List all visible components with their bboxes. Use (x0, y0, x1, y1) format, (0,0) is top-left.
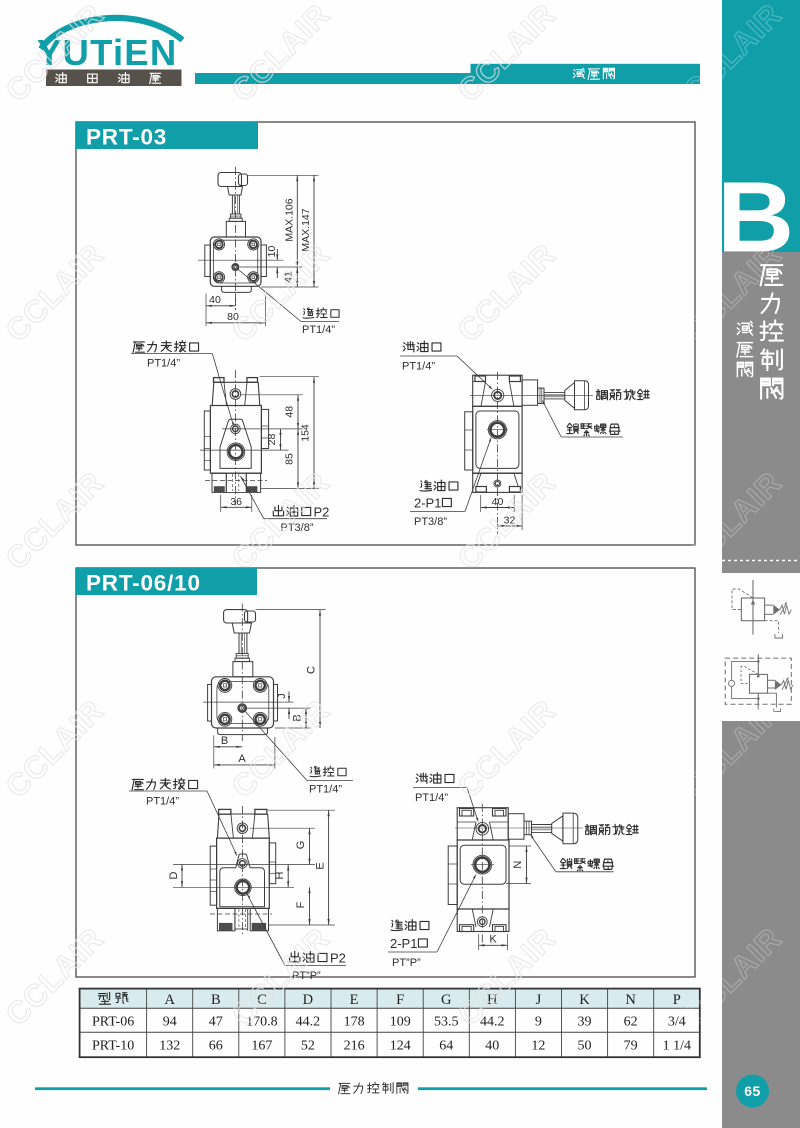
svg-text:PRT-06/10: PRT-06/10 (86, 571, 201, 596)
svg-text:PT1/4”: PT1/4” (147, 358, 180, 370)
svg-text:109: 109 (390, 1014, 411, 1029)
svg-text:48: 48 (284, 406, 296, 418)
svg-text:40: 40 (485, 1039, 499, 1054)
svg-text:40: 40 (209, 294, 221, 306)
svg-text:K: K (489, 934, 497, 946)
svg-text:MAX.106: MAX.106 (283, 198, 295, 241)
svg-text:66: 66 (209, 1039, 223, 1054)
svg-text:PT1/4”: PT1/4” (415, 792, 448, 804)
svg-text:44.2: 44.2 (296, 1014, 321, 1029)
svg-text:PT1/4”: PT1/4” (402, 361, 435, 373)
svg-text:H: H (274, 871, 286, 879)
svg-text:B: B (221, 735, 228, 747)
svg-text:J: J (536, 992, 542, 1008)
svg-text:47: 47 (209, 1014, 223, 1029)
svg-text:167: 167 (251, 1039, 272, 1054)
svg-text:50: 50 (578, 1039, 592, 1054)
svg-text:64: 64 (439, 1039, 453, 1054)
svg-text:1 1/4: 1 1/4 (663, 1039, 691, 1054)
svg-text:N: N (625, 992, 636, 1008)
svg-text:PRT-10: PRT-10 (92, 1039, 134, 1054)
svg-text:2-P1: 2-P1 (414, 496, 441, 511)
svg-text:PT3/8”: PT3/8” (414, 516, 447, 528)
svg-text:65: 65 (744, 1083, 761, 1099)
svg-text:52: 52 (301, 1039, 315, 1054)
svg-text:PT1/4”: PT1/4” (309, 784, 342, 796)
svg-text:G: G (441, 992, 452, 1008)
svg-text:E: E (350, 992, 359, 1008)
svg-text:E: E (314, 862, 326, 869)
svg-text:39: 39 (578, 1014, 592, 1029)
svg-text:36: 36 (230, 496, 242, 508)
svg-text:D: D (303, 992, 313, 1008)
svg-text:12: 12 (531, 1039, 545, 1054)
svg-text:N: N (512, 861, 524, 869)
svg-text:53.5: 53.5 (434, 1014, 459, 1029)
svg-text:132: 132 (159, 1039, 180, 1054)
svg-text:PRT-03: PRT-03 (86, 125, 167, 150)
svg-text:28: 28 (266, 434, 278, 446)
svg-text:F: F (295, 901, 307, 908)
svg-text:A: A (164, 992, 175, 1008)
svg-text:K: K (579, 992, 590, 1008)
svg-text:P2: P2 (330, 951, 346, 966)
svg-text:79: 79 (624, 1039, 638, 1054)
svg-text:PT”P”: PT”P” (392, 957, 421, 969)
svg-text:3/4: 3/4 (668, 1014, 686, 1029)
svg-text:10: 10 (266, 246, 278, 258)
svg-text:B: B (211, 992, 221, 1008)
svg-text:J: J (276, 693, 288, 698)
svg-text:62: 62 (624, 1014, 638, 1029)
svg-text:D: D (168, 871, 180, 879)
svg-text:PT1/4”: PT1/4” (146, 796, 179, 808)
svg-text:124: 124 (390, 1039, 411, 1054)
svg-text:178: 178 (344, 1014, 365, 1029)
svg-text:216: 216 (344, 1039, 365, 1054)
svg-text:9: 9 (535, 1014, 542, 1029)
svg-text:G: G (295, 841, 307, 850)
svg-text:154: 154 (300, 424, 312, 442)
svg-text:85: 85 (284, 453, 296, 465)
svg-text:2-P1: 2-P1 (390, 936, 417, 951)
svg-text:F: F (396, 992, 404, 1008)
svg-text:C: C (306, 666, 318, 674)
svg-text:94: 94 (163, 1014, 177, 1029)
svg-text:PRT-06: PRT-06 (92, 1014, 134, 1029)
svg-text:PT1/4”: PT1/4” (302, 324, 335, 336)
